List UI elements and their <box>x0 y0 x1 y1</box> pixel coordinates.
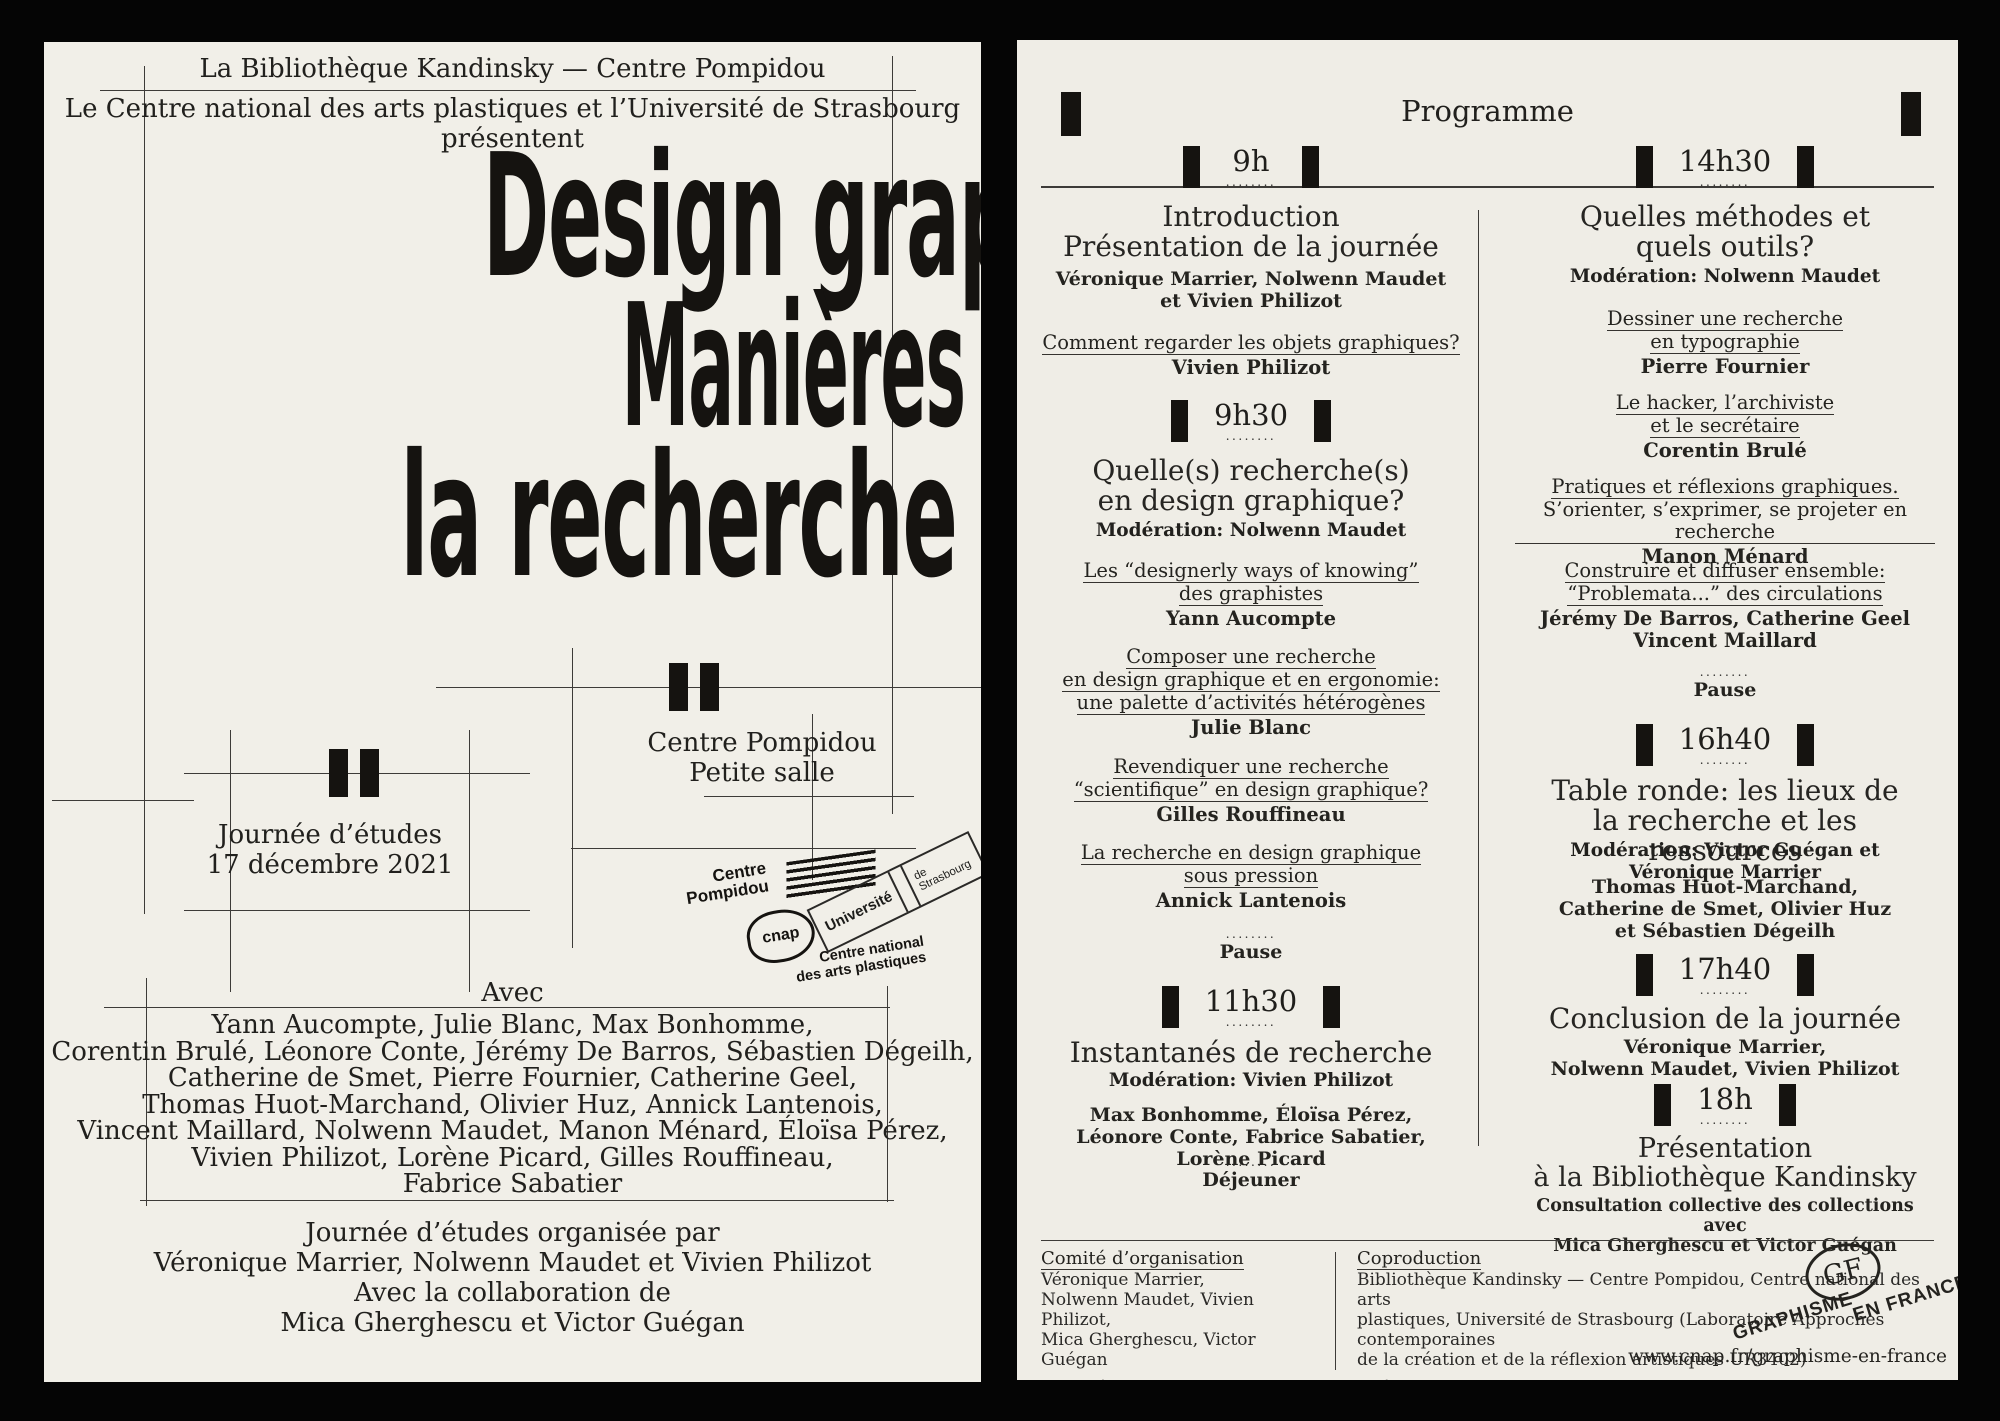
org-committee-line: Nolwenn Maudet, Vivien Philizot, <box>1041 1290 1327 1330</box>
break: ........ Pause <box>1515 666 1935 702</box>
session-time: 16h40........ <box>1515 724 1935 766</box>
break: ........ Déjeuner <box>1041 1156 1461 1192</box>
talk: Le hacker, l’archiviste et le secrétaire… <box>1515 392 1935 462</box>
time-bar-icon <box>1636 724 1653 766</box>
session-moderation: Modération: Nolwenn Maudet <box>1515 266 1935 288</box>
organizers-block: Journée d’études organisée par Véronique… <box>44 1218 981 1338</box>
avec-label: Avec <box>44 978 981 1008</box>
talk: Les “designerly ways of knowing” des gra… <box>1041 560 1461 630</box>
venue-box-left-line <box>572 648 573 948</box>
session-heading: Présentation à la Bibliothèque Kandinsky <box>1515 1134 1935 1192</box>
participants-line: Thomas Huot-Marchand, Olivier Huz, Annic… <box>44 1092 981 1119</box>
centre-pompidou-logo: Centre Pompidou <box>654 859 770 912</box>
participants-line: Catherine de Smet, Pierre Fournier, Cath… <box>44 1065 981 1092</box>
session-time: 14h30........ <box>1515 146 1935 188</box>
talk: Revendiquer une recherche “scientifique”… <box>1041 756 1461 826</box>
talk: La recherche en design graphique sous pr… <box>1041 842 1461 912</box>
date-box-left-tick <box>52 800 194 801</box>
session-time: 18h........ <box>1515 1084 1935 1126</box>
time-bar-icon <box>1797 954 1814 996</box>
participants-line: Corentin Brulé, Léonore Conte, Jérémy De… <box>44 1039 981 1066</box>
participants-line: Vivien Philizot, Lorène Picard, Gilles R… <box>44 1145 981 1172</box>
participants-line: Fabrice Sabatier <box>44 1171 981 1198</box>
session-heading: Introduction Présentation de la journée <box>1041 202 1461 262</box>
break: ........ Pause <box>1041 928 1461 964</box>
participants-list: Yann Aucompte, Julie Blanc, Max Bonhomme… <box>44 1012 981 1198</box>
session-time: 9h........ <box>1041 146 1461 188</box>
event-date: 17 décembre 2021 <box>190 850 470 880</box>
session-heading: Conclusion de la journée <box>1515 1004 1935 1034</box>
talk: Comment regarder les objets graphiques? … <box>1041 332 1461 379</box>
talk: Pratiques et réflexions graphiques. S’or… <box>1515 476 1935 568</box>
pause-mark-icon <box>329 749 379 797</box>
footer-divider <box>1335 1252 1336 1370</box>
time-bar-icon <box>1797 724 1814 766</box>
venue-room: Petite salle <box>572 758 952 788</box>
session-moderation: Modération: Vivien Philizot <box>1041 1070 1461 1092</box>
org-committee-line: Mica Gherghescu, Victor Guégan <box>1041 1330 1327 1370</box>
time-bar-icon <box>1636 954 1653 996</box>
event-type: Journée d’études <box>190 820 470 850</box>
poster-page: La Bibliothèque Kandinsky — Centre Pompi… <box>44 42 981 1382</box>
footer-committees: Comité d’organisation Véronique Marrier,… <box>1041 1248 1327 1380</box>
talk: Composer une recherche en design graphiq… <box>1041 646 1461 739</box>
session-heading: Quelles méthodes et quels outils? <box>1515 202 1935 262</box>
organizers-line: Mica Gherghescu et Victor Guégan <box>44 1308 981 1338</box>
venue-box-bottom-line <box>704 796 914 797</box>
date-box-bottom-line <box>184 910 530 911</box>
participants-line: Vincent Maillard, Nolwenn Maudet, Manon … <box>44 1118 981 1145</box>
avec-bottom-rule <box>140 1200 894 1201</box>
presenter-line-1: La Bibliothèque Kandinsky — Centre Pompi… <box>44 54 981 84</box>
poster-title-line-3: la recherche <box>44 442 981 592</box>
time-bar-icon <box>1654 1084 1671 1126</box>
session-moderation: Modération: Nolwenn Maudet <box>1041 520 1461 542</box>
time-bar-icon <box>1302 146 1319 188</box>
session-speakers: Véronique Marrier, Nolwenn Maudet, Vivie… <box>1515 1036 1935 1080</box>
time-bar-icon <box>1183 146 1200 188</box>
column-divider <box>1478 210 1479 1146</box>
session-time: 9h30........ <box>1041 400 1461 442</box>
session-heading: Quelle(s) recherche(s) en design graphiq… <box>1041 456 1461 516</box>
venue-box-lower-line <box>571 848 916 849</box>
programme-column-2: 14h30........ Quelles méthodes et quels … <box>1515 40 1935 1380</box>
organizers-line: Avec la collaboration de <box>44 1278 981 1308</box>
time-bar-icon <box>1314 400 1331 442</box>
talk: Dessiner une recherche en typographie Pi… <box>1515 308 1935 378</box>
time-bar-icon <box>1323 986 1340 1028</box>
participants-line: Yann Aucompte, Julie Blanc, Max Bonhomme… <box>44 1012 981 1039</box>
credits-heading: Crédits <box>1357 1378 1932 1380</box>
session-time: 17h40........ <box>1515 954 1935 996</box>
session-speakers: Thomas Huot-Marchand, Catherine de Smet,… <box>1515 876 1935 942</box>
organizers-line: Véronique Marrier, Nolwenn Maudet et Viv… <box>44 1248 981 1278</box>
time-bar-icon <box>1636 146 1653 188</box>
session-heading: Instantanés de recherche <box>1041 1038 1461 1068</box>
programme-page: Programme 9h........ Introduction Présen… <box>1017 40 1958 1380</box>
session-speakers: Véronique Marrier, Nolwenn Maudet et Viv… <box>1041 268 1461 312</box>
venue-name: Centre Pompidou <box>572 728 952 758</box>
time-bar-icon <box>1797 146 1814 188</box>
header-rule <box>100 90 916 91</box>
sci-committee-heading: Comité scientifique <box>1041 1378 1327 1380</box>
website-link[interactable]: www.cnap.fr/graphisme-en-france <box>1617 1346 1947 1367</box>
gf-stamp-text: GRAPHISME <box>1730 1288 1855 1345</box>
pause-mark-icon <box>669 663 719 711</box>
time-bar-icon <box>1779 1084 1796 1126</box>
time-bar-icon <box>1162 986 1179 1028</box>
time-bar-icon <box>1171 400 1188 442</box>
org-committee-line: Véronique Marrier, <box>1041 1270 1327 1290</box>
session-time: 11h30........ <box>1041 986 1461 1028</box>
scan-background: La Bibliothèque Kandinsky — Centre Pompi… <box>0 0 2000 1421</box>
talk: Construire et diffuser ensemble: “Proble… <box>1515 560 1935 652</box>
org-committee-heading: Comité d’organisation <box>1041 1248 1327 1270</box>
organizers-line: Journée d’études organisée par <box>44 1218 981 1248</box>
avec-top-rule <box>104 1007 890 1008</box>
